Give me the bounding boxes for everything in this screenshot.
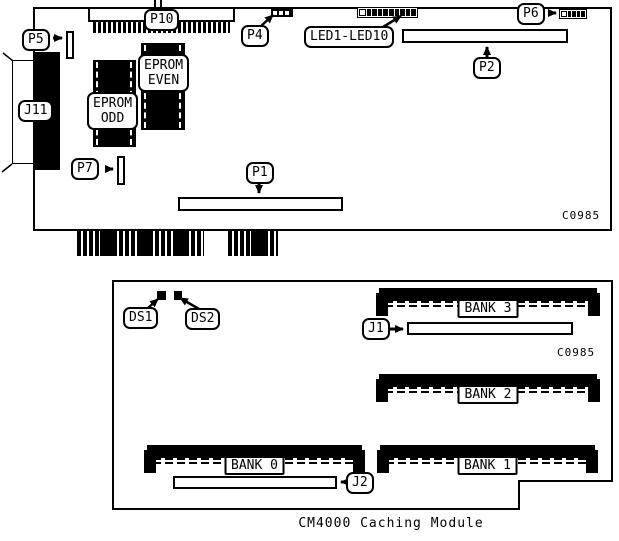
p10-pin-top-b: [160, 0, 162, 8]
ds1-label: DS1: [129, 310, 152, 325]
callout-p5: P5: [22, 29, 50, 51]
p10-pin-top-a: [154, 0, 156, 8]
bottom-board-edge-step-h: [518, 480, 613, 482]
led-4: [378, 9, 383, 16]
callout-p4: P4: [241, 25, 269, 47]
bank3-socket-end: [588, 293, 600, 316]
bottom-board-edge-right: [611, 280, 613, 482]
j11-label: J11: [24, 103, 47, 118]
led-8: [400, 9, 405, 16]
callout-led-range: LED1-LED10: [304, 26, 394, 48]
bottom-board-edge-step-v: [518, 480, 520, 510]
bank1-label: BANK 1: [464, 458, 511, 473]
p4-label: P4: [247, 28, 263, 43]
p6-label: P6: [523, 6, 539, 21]
bank0-socket: BANK 0: [144, 445, 365, 473]
p7-header: [117, 156, 125, 185]
j1-label: J1: [368, 321, 384, 336]
p5-header: [66, 31, 74, 59]
led-7: [395, 9, 400, 16]
led-range-label: LED1-LED10: [310, 29, 388, 44]
p4-connector: [271, 8, 293, 17]
top-board-part-code: C0985: [562, 209, 600, 222]
callout-j1: J1: [362, 318, 390, 340]
callout-j11: J11: [18, 100, 53, 122]
bank1-socket-end: [586, 450, 598, 473]
bank1-socket-end: [377, 450, 389, 473]
isa-edge-connector-a: [77, 231, 204, 256]
ds2-led: [174, 291, 182, 300]
p6-pin: [577, 11, 581, 17]
j2-connector: [173, 476, 337, 489]
led-5: [383, 9, 388, 16]
eprom-odd-label-line2: ODD: [93, 111, 132, 126]
p7-label: P7: [77, 161, 93, 176]
callout-eprom-odd: EPROM ODD: [87, 92, 138, 130]
led-bar: [357, 7, 418, 18]
ds2-label: DS2: [191, 311, 214, 326]
j1-connector: [407, 322, 573, 335]
led-1: [359, 9, 366, 16]
eprom-odd-label-line1: EPROM: [93, 96, 132, 111]
bank1-label-box: BANK 1: [457, 456, 518, 475]
p4-pin: [279, 11, 283, 15]
bottom-board-edge-bottom: [112, 508, 520, 510]
p2-label: P2: [479, 60, 495, 75]
bank2-socket: BANK 2: [376, 374, 600, 402]
p4-pin: [273, 11, 277, 15]
bank2-label: BANK 2: [465, 387, 512, 402]
bank3-socket-end: [376, 293, 388, 316]
p5-label: P5: [28, 32, 44, 47]
p1-connector: [178, 197, 343, 211]
p4-pin: [285, 11, 289, 15]
bank0-socket-end: [353, 450, 365, 473]
p2-connector: [402, 29, 568, 43]
callout-ds1: DS1: [123, 307, 158, 329]
bracket-tick-bottom: [2, 164, 12, 172]
diagram-caption: CM4000 Caching Module: [298, 516, 483, 531]
led-10: [411, 9, 416, 16]
bank3-socket: BANK 3: [376, 288, 600, 316]
bank1-socket: BANK 1: [377, 445, 598, 473]
ds1-led: [157, 291, 166, 300]
p10-label: P10: [150, 12, 173, 27]
bank2-socket-end: [588, 379, 600, 402]
bottom-board-edge-left: [112, 280, 114, 510]
bottom-board-part-code: C0985: [557, 346, 595, 359]
led-3: [372, 9, 377, 16]
p6-pin: [581, 11, 585, 17]
bank3-label-box: BANK 3: [458, 299, 519, 318]
bank0-label-box: BANK 0: [224, 456, 285, 475]
p1-label: P1: [252, 165, 268, 180]
led-6: [389, 9, 394, 16]
bottom-board-edge-top: [112, 280, 613, 282]
bank2-socket-end: [376, 379, 388, 402]
callout-p2: P2: [473, 57, 501, 79]
callout-p1: P1: [246, 162, 274, 184]
bank3-label: BANK 3: [465, 301, 512, 316]
bank0-socket-end: [144, 450, 156, 473]
callout-ds2: DS2: [185, 308, 220, 330]
p6-pin: [561, 11, 567, 17]
p6-pin: [568, 11, 572, 17]
callout-p6: P6: [517, 3, 545, 25]
bank2-label-box: BANK 2: [458, 385, 519, 404]
p6-pin: [572, 11, 576, 17]
led-2: [367, 9, 372, 16]
eprom-even-label-line1: EPROM: [144, 58, 183, 73]
j2-label: J2: [352, 475, 368, 490]
callout-p7: P7: [71, 158, 99, 180]
callout-p10: P10: [144, 9, 179, 31]
callout-j2: J2: [346, 472, 374, 494]
isa-edge-connector-b: [228, 231, 278, 256]
diagram-canvas: C0985 P5 P10 P4 LED1-LED10 P6 P2 J11 EPR…: [0, 0, 619, 541]
led-9: [406, 9, 411, 16]
eprom-even-label-line2: EVEN: [144, 73, 183, 88]
bank0-label: BANK 0: [231, 458, 278, 473]
callout-eprom-even: EPROM EVEN: [138, 54, 189, 92]
p6-connector: [559, 9, 587, 19]
